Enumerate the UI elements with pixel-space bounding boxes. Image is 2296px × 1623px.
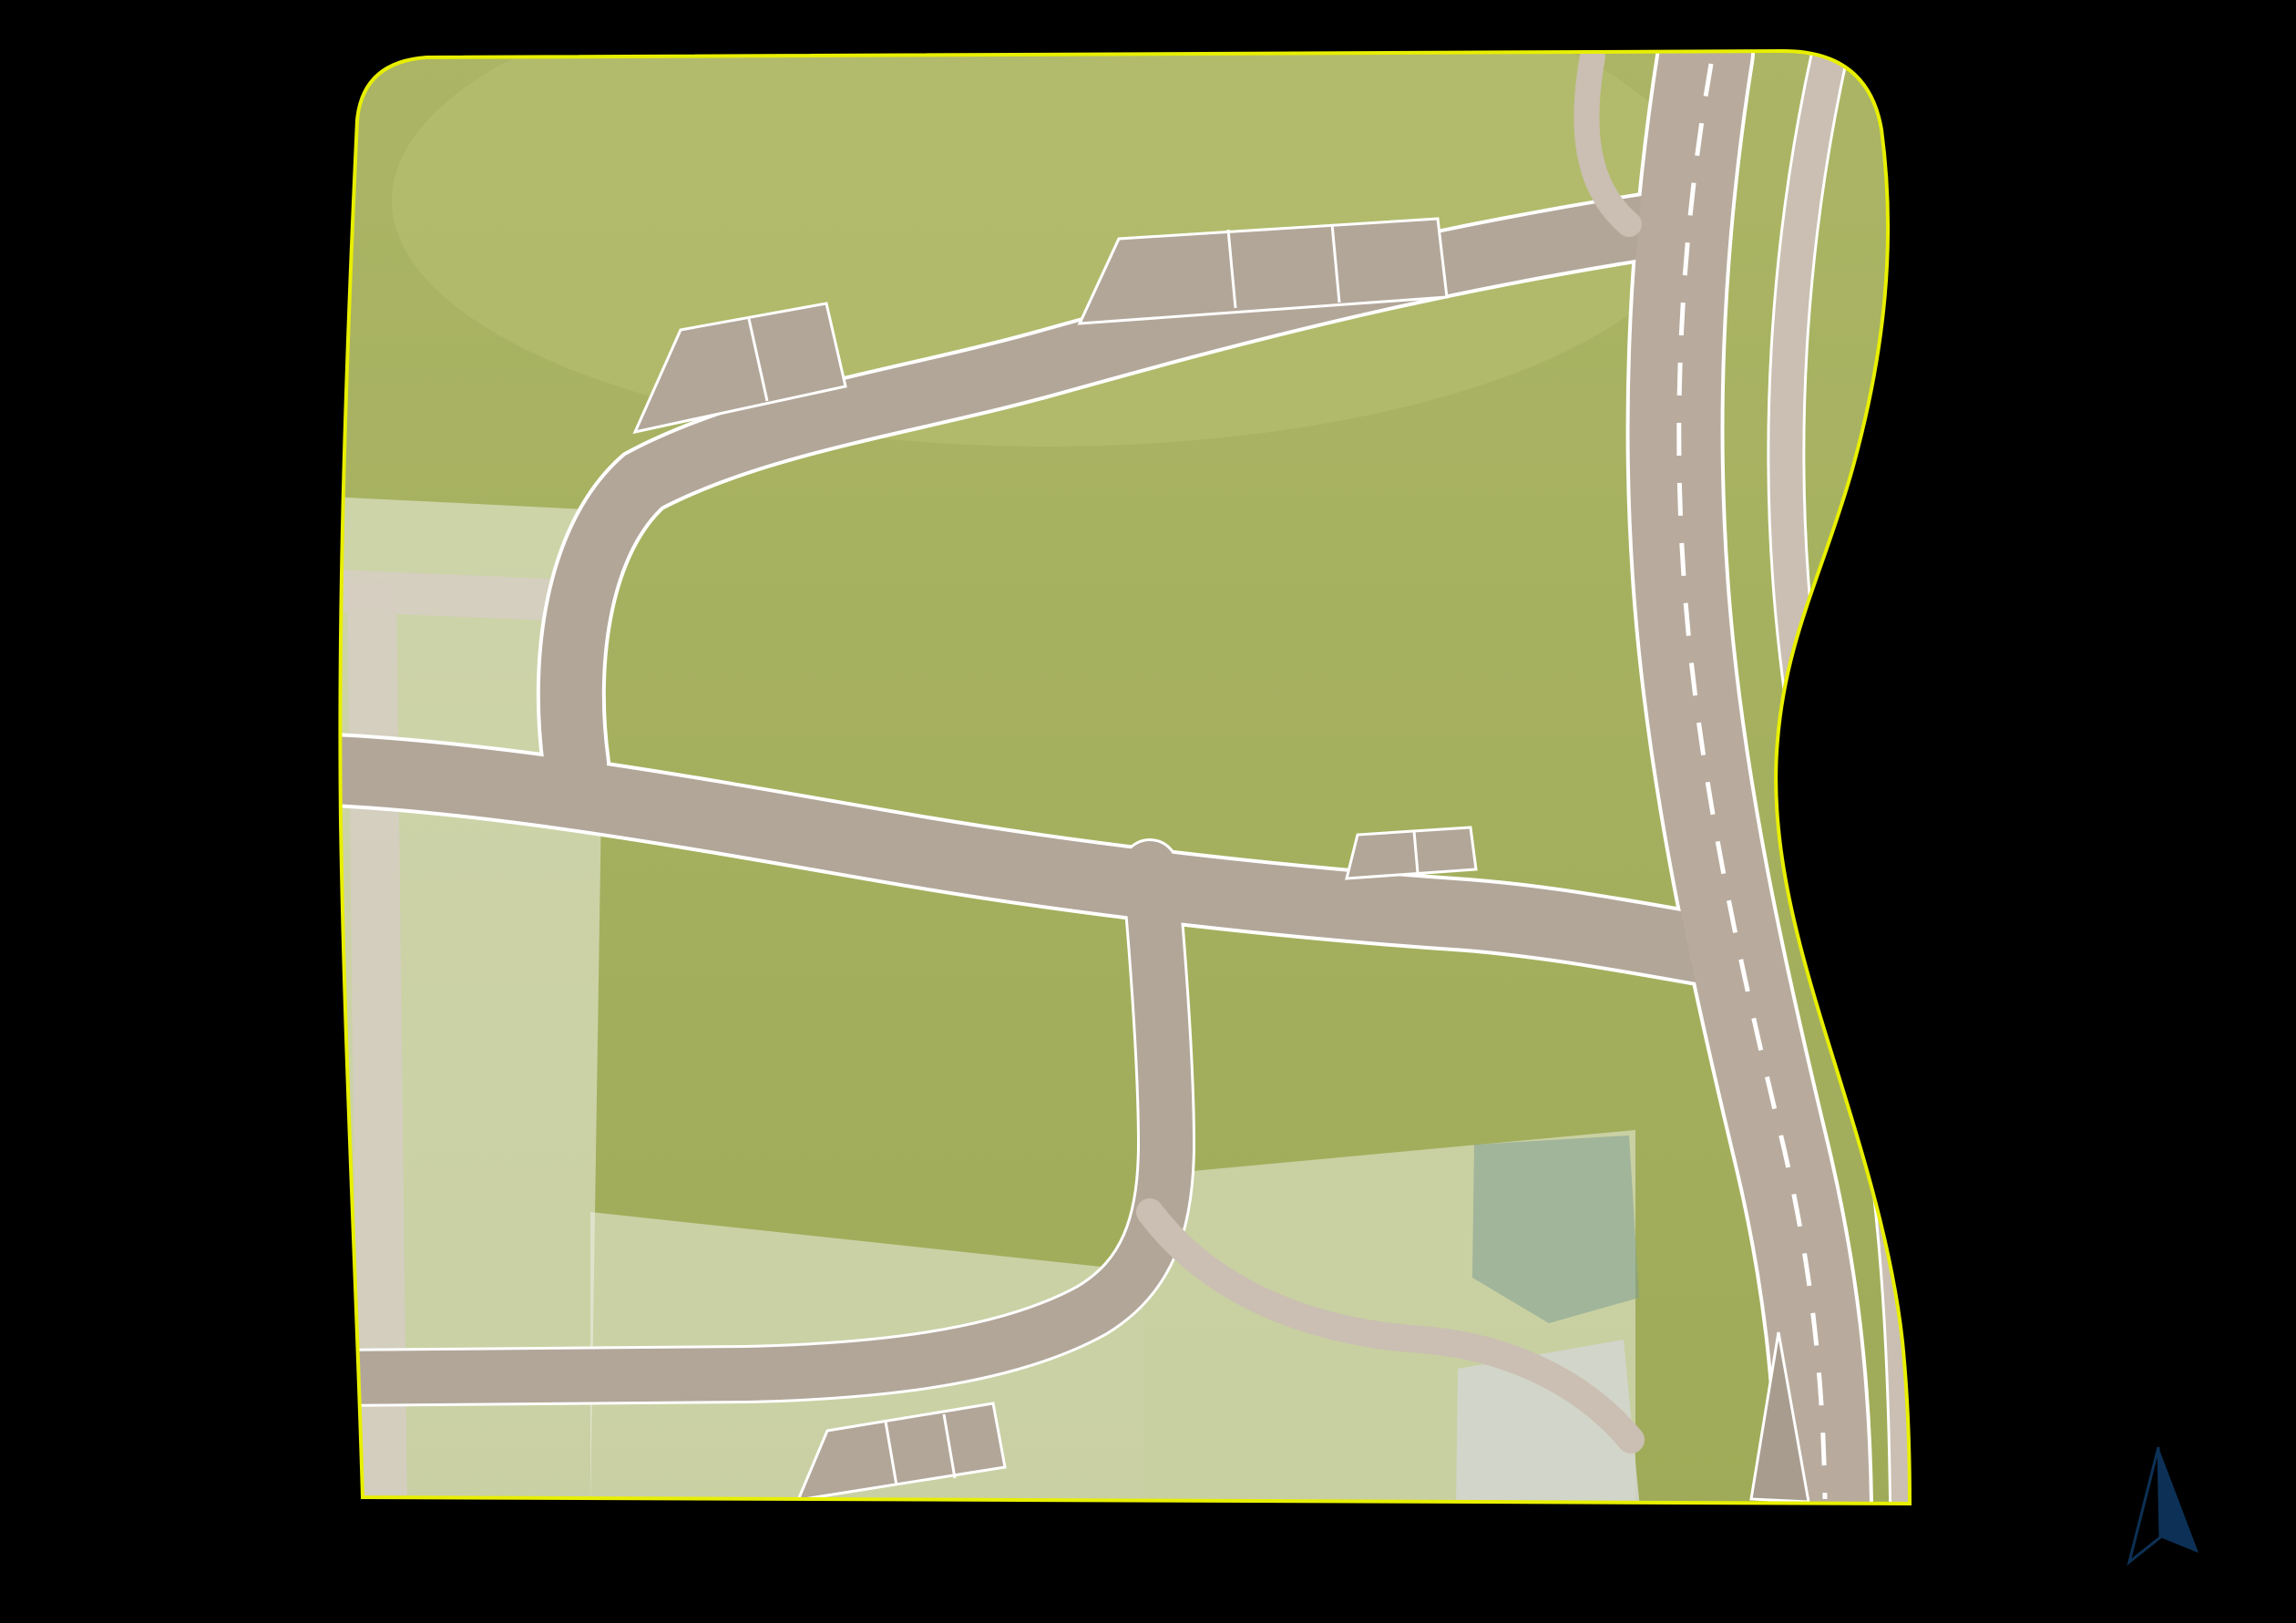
north-arrow-left: [2129, 1447, 2160, 1562]
north-arrow-right: [2158, 1447, 2199, 1553]
site-plan-page: [0, 0, 2296, 1623]
map-content: [328, 0, 1932, 1522]
north-arrow: [2129, 1447, 2199, 1562]
site-plan-map: [0, 0, 2296, 1623]
parking-bay-plot1: [1347, 827, 1476, 878]
